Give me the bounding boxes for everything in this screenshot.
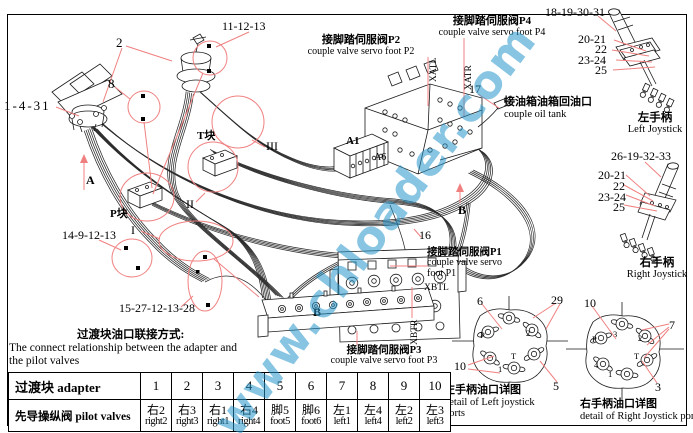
valve-en: left1: [327, 417, 357, 428]
adapter-cell: 7: [327, 373, 358, 400]
note-line1: The connect relationship between the ada…: [9, 342, 237, 354]
label-roman-iii: III: [266, 140, 278, 153]
valve-en: right1: [203, 417, 233, 428]
label-a6: A6: [374, 153, 386, 164]
valve-en: right3: [172, 417, 202, 428]
left-joystick-ports-detail: P 2 1 T: [452, 296, 568, 394]
label-7: 7: [669, 319, 675, 332]
annotation-p3: 接脚踏伺服阀P3 couple valve servo foot P3: [318, 345, 450, 367]
valve-cn: 左3: [420, 404, 450, 417]
valve-en: foot6: [296, 417, 326, 428]
valve-cn: 脚5: [265, 404, 295, 417]
valve-cell: 脚5foot5: [265, 400, 296, 432]
table-row2-label: 先导操纵阀 pilot valves: [9, 400, 141, 432]
direction-arrow-a: [80, 154, 88, 163]
valve-cell: 左1left1: [327, 400, 358, 432]
right-detail-caption-cn: 右手柄油口详图: [580, 399, 693, 411]
valve-cn: 右2: [141, 404, 171, 417]
annotation-p4-en: couple valve servo foot P4: [426, 28, 558, 39]
valve-cn: 左1: [327, 404, 357, 417]
valve-en: left4: [358, 417, 388, 428]
valve-cell: 左2left2: [389, 400, 420, 432]
label-rj-25: 25: [613, 201, 625, 214]
port-label: P: [592, 334, 597, 344]
label-direction-b: B: [458, 204, 466, 217]
valve-en: left3: [420, 417, 450, 428]
right-joystick-caption: 右手柄 Right Joystick: [622, 257, 692, 280]
port-tag-xatl: XATL: [429, 58, 439, 82]
left-detail-caption-en2: ports: [444, 408, 535, 419]
port-label: 2: [526, 328, 530, 338]
valve-cn: 右3: [172, 404, 202, 417]
valve-cell: 右2right2: [141, 400, 172, 432]
adapter-cell: 1: [141, 373, 172, 400]
adapter-cell: 5: [265, 373, 296, 400]
label-16: 16: [419, 229, 431, 242]
label-5: 5: [553, 380, 559, 393]
valve-cn: 右1: [203, 404, 233, 417]
upper-joystick-assembly: [177, 34, 215, 92]
right-joystick-caption-en: Right Joystick: [622, 269, 692, 280]
valve-cn: 左4: [358, 404, 388, 417]
valve-en: left2: [389, 417, 419, 428]
valve-cell: 右4right4: [234, 400, 265, 432]
port-label: 1: [608, 369, 612, 379]
annotation-p4: 接脚踏伺服阀P4 couple valve servo foot P4: [426, 16, 558, 38]
valve-cn: 右4: [234, 404, 264, 417]
label-a1: A1: [346, 136, 359, 148]
left-pedal-assembly: [52, 64, 122, 132]
annotation-tank: 接油箱油箱回油口 couple oil tank: [504, 97, 592, 120]
port-tag-xbtl: XBTL: [424, 284, 449, 294]
adapter-cell: 9: [389, 373, 420, 400]
valve-en: foot5: [265, 417, 295, 428]
left-detail-caption-en1: detail of Left joystick: [444, 397, 535, 408]
valve-en: right4: [234, 417, 264, 428]
adapter-cell: 8: [358, 373, 389, 400]
direction-arrow-b: [456, 183, 464, 192]
label-roman-i: I: [131, 224, 135, 237]
adapter-cell: 6: [296, 373, 327, 400]
label-26-19-32-33: 26-19-32-33: [611, 150, 671, 163]
label-8: 8: [108, 77, 115, 91]
label-valve-b: B: [313, 306, 321, 319]
note-title: 过渡块油口联接方式:: [77, 329, 184, 341]
t-block: [203, 150, 237, 176]
port-label: T: [634, 351, 640, 361]
label-29: 29: [551, 294, 563, 307]
annotation-p2-en: couple valve servo foot P2: [295, 47, 427, 58]
label-lj-25: 25: [595, 64, 607, 77]
valve-cell: 脚6foot6: [296, 400, 327, 432]
label-t-block: T块: [197, 131, 215, 143]
annotation-p1-en2: foot P1: [427, 269, 502, 280]
adapter-cell: 10: [420, 373, 451, 400]
port-label: 2: [638, 333, 642, 343]
right-detail-caption: 右手柄油口详图 detail of Right Joystick ports: [580, 399, 693, 422]
annotation-p1: 接脚踏伺服阀P1 couple valve servo foot P1: [427, 247, 502, 279]
left-joystick-caption-cn: 左手柄: [618, 112, 692, 124]
annotation-p2-cn: 接脚踏伺服阀P2: [295, 35, 427, 47]
port-tag-xatr: XATR: [464, 65, 474, 90]
left-joystick-caption-en: Left Joystick: [618, 124, 692, 135]
label-direction-a: A: [86, 174, 95, 187]
left-detail-caption: 左手柄油口详图 detail of Left joystick ports: [444, 385, 535, 419]
label-14-9-12-13: 14-9-12-13: [62, 229, 116, 242]
label-15-27-12-13-28: 15-27-12-13-28: [119, 302, 195, 315]
label-p-block: P块: [110, 209, 128, 221]
label-11-12-13: 11-12-13: [222, 20, 266, 33]
adapter-pilot-valve-table: 过渡块 adapter 1 2 3 4 5 6 7 8 9 10 先导操纵阀 p…: [8, 372, 451, 432]
annotation-p2: 接脚踏伺服阀P2 couple valve servo foot P2: [295, 35, 427, 57]
label-2: 2: [116, 36, 123, 50]
valve-cn: 脚6: [296, 404, 326, 417]
annotation-p4-cn: 接脚踏伺服阀P4: [426, 16, 558, 28]
label-3: 3: [655, 381, 661, 394]
label-18-19-30-31: 18-19-30-31: [545, 6, 605, 19]
annotation-tank-cn: 接油箱油箱回油口: [504, 97, 592, 109]
valve-cell: 右1right1: [203, 400, 234, 432]
adapter-cell: 4: [234, 373, 265, 400]
diagram-canvas: P 2 1 T P 3 2 4 1 T: [0, 0, 693, 433]
valve-en: right2: [141, 417, 171, 428]
right-detail-caption-en1: detail of Right Joystick ports: [580, 411, 693, 422]
annotation-p3-en: couple valve servo foot P3: [318, 356, 450, 367]
right-joystick-ports-detail: P 3 2 4 1 T: [566, 302, 684, 400]
port-label: T: [511, 351, 517, 361]
table-row1-label: 过渡块 adapter: [9, 373, 141, 400]
adapter-cell: 2: [172, 373, 203, 400]
adapter-cell: 3: [203, 373, 234, 400]
valve-cell: 左3left3: [420, 400, 451, 432]
label-6: 6: [477, 295, 483, 308]
annotation-p1-en1: couple valve servo: [427, 258, 502, 269]
valve-cn: 左2: [389, 404, 419, 417]
port-tag-xbtr: XBTR: [410, 320, 420, 345]
label-roman-ii: II: [186, 198, 194, 211]
valve-cell: 左4left4: [358, 400, 389, 432]
valve-cell: 右3right3: [172, 400, 203, 432]
annotation-tank-en: couple oil tank: [504, 109, 592, 120]
left-joystick-caption: 左手柄 Left Joystick: [618, 112, 692, 135]
label-10-right: 10: [584, 297, 596, 310]
note-line2: the pilot valves: [9, 355, 79, 367]
label-10-left: 10: [454, 360, 466, 373]
left-detail-caption-cn: 左手柄油口详图: [444, 385, 535, 397]
port-label: P: [480, 330, 485, 340]
label-1-4-31: 1-4-31: [4, 99, 51, 113]
right-joystick-caption-cn: 右手柄: [622, 257, 692, 269]
